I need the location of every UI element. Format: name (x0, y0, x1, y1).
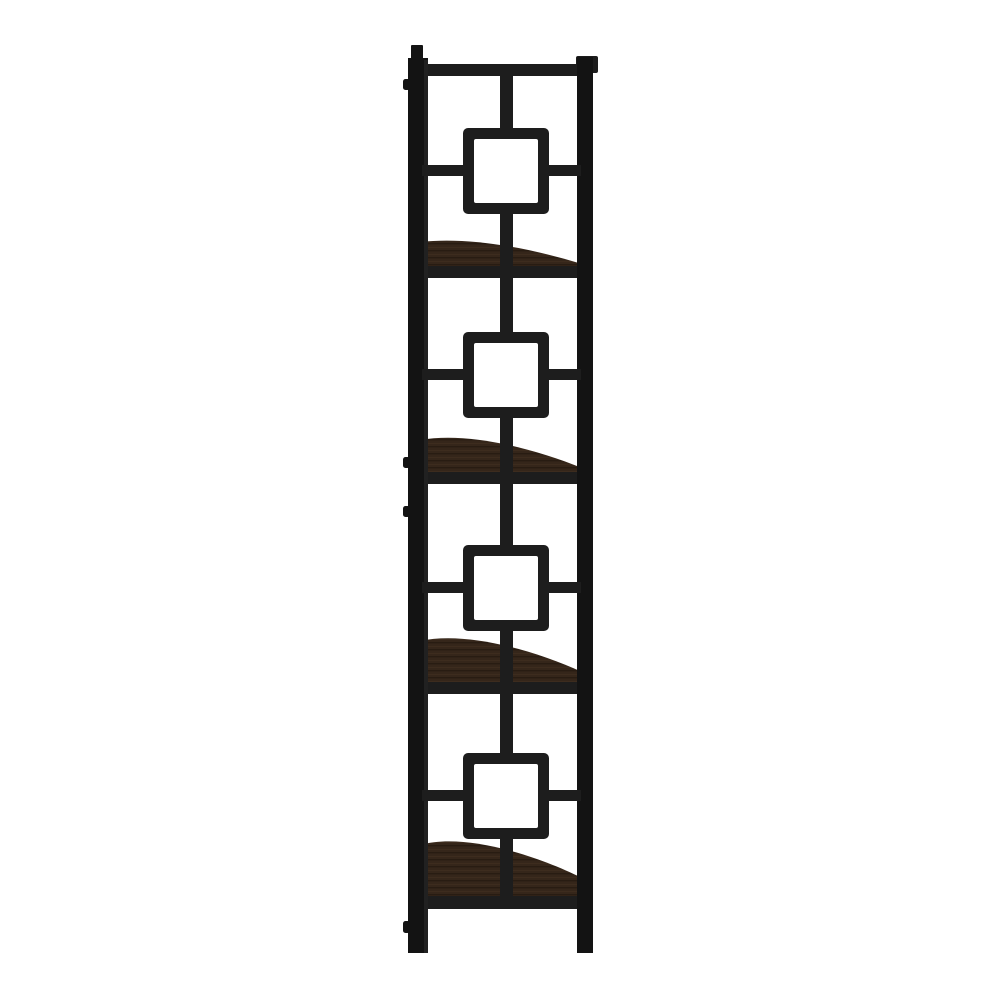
center-bar-lower (500, 412, 513, 476)
side-connector-left (422, 582, 467, 593)
left-post-edge-highlight (424, 60, 428, 953)
wall-screw-top (403, 79, 410, 90)
side-connector-right (545, 582, 581, 593)
side-connector-left (422, 369, 467, 380)
product-photo (0, 0, 1000, 1000)
side-connector-right (545, 790, 581, 801)
center-bar-lower (500, 625, 513, 686)
square-inner-cutout (474, 556, 538, 620)
center-bar-upper (500, 274, 513, 338)
side-connector-right (545, 369, 581, 380)
wall-screw-middle-upper (403, 457, 410, 468)
etagere-side-view-illustration (0, 0, 1000, 1000)
wall-screw-middle-lower (403, 506, 410, 517)
square-inner-cutout (474, 139, 538, 203)
square-inner-cutout (474, 764, 538, 828)
side-connector-right (545, 165, 581, 176)
center-bar-upper (500, 480, 513, 551)
square-inner-cutout (474, 343, 538, 407)
right-front-post (577, 57, 593, 953)
wall-screw-bottom (403, 921, 410, 933)
side-connector-left (422, 790, 467, 801)
center-bar-upper (500, 690, 513, 759)
side-connector-left (422, 165, 467, 176)
center-bar-upper (500, 72, 513, 134)
center-bar-lower (500, 833, 513, 900)
center-bar-lower (500, 208, 513, 270)
